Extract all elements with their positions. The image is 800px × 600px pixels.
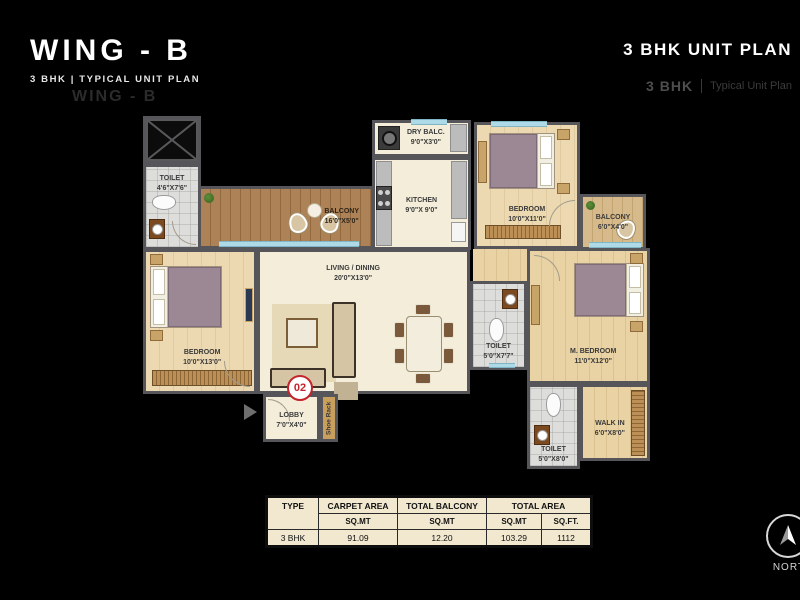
value-total-balcony: 12.20 [398, 530, 487, 547]
side-table [630, 253, 643, 264]
room-label: LIVING / DINING [326, 264, 380, 274]
sink-icon [451, 222, 466, 242]
room-label: BEDROOM [184, 348, 221, 358]
room-kitchen: KITCHEN 9'0"X 9'0" [372, 157, 471, 250]
room-dims: 6'0"X8'0" [595, 429, 625, 439]
side-table [557, 129, 570, 140]
room-toilet-middle: TOILET 5'0"X7'7" [470, 281, 527, 370]
room-dry-balcony: DRY BALC. 9'0"X3'0" [372, 120, 471, 157]
washbasin-icon [502, 289, 518, 309]
room-label: BALCONY [596, 213, 631, 223]
value-total-area-sqft: 1112 [542, 530, 592, 547]
room-lobby: LOBBY 7'0"X4'0" [263, 394, 320, 442]
shaft-duct [143, 116, 201, 164]
room-toilet-bottom: TOILET 5'0"X8'0" [527, 384, 580, 469]
utility-counter [450, 124, 467, 152]
window [489, 363, 515, 368]
ghost-type-text: Typical Unit Plan [710, 80, 792, 92]
toilet-wc-icon [152, 195, 176, 210]
window [219, 241, 359, 247]
room-dims: 16'0"X5'0" [325, 217, 359, 227]
table-header-row: TYPE CARPET AREA TOTAL BALCONY TOTAL ARE… [267, 497, 592, 514]
room-label: BEDROOM [509, 205, 546, 215]
door-arc [549, 200, 575, 226]
bed-icon [574, 263, 644, 317]
room-label: BALCONY [324, 207, 359, 217]
north-arrow-icon [775, 523, 800, 549]
col-type: TYPE [267, 497, 319, 530]
window [589, 242, 641, 248]
col-carpet-area: CARPET AREA [319, 497, 398, 514]
dining-table-icon [406, 316, 442, 372]
room-dims: 4'6"X7'6" [157, 184, 187, 194]
dining-chair-icon [443, 322, 454, 338]
stove-icon [376, 186, 392, 210]
room-dims: 5'0"X7'7" [483, 352, 513, 362]
unit-plan-title: 3 BHK UNIT PLAN [623, 40, 792, 60]
bed-icon [489, 133, 555, 189]
room-dims: 9'0"X3'0" [411, 138, 441, 148]
plant-icon [204, 193, 214, 203]
wardrobe-icon [485, 225, 561, 239]
side-table [150, 330, 163, 341]
room-dims: 9'0"X 9'0" [405, 206, 437, 216]
wing-subtitle: 3 BHK | TYPICAL UNIT PLAN [30, 74, 200, 85]
kitchen-counter [451, 161, 467, 219]
room-dims: 10'0"X13'0" [183, 358, 221, 368]
room-master-bedroom: M. BEDROOM 11'0"X12'0" [527, 248, 650, 384]
compass-circle [766, 514, 800, 558]
wardrobe-icon [631, 390, 645, 456]
room-label: WALK IN [595, 419, 625, 429]
room-label: TOILET [486, 342, 511, 352]
window [491, 121, 547, 127]
toilet-wc-icon [546, 393, 561, 417]
tv-unit [245, 288, 253, 322]
dining-chair-icon [394, 322, 405, 338]
washbasin-icon [149, 219, 165, 239]
header-right: 3 BHK UNIT PLAN 3 BHK Typical Unit Plan [623, 40, 792, 94]
unit-sqmt: SQ.MT [319, 514, 398, 530]
room-living-dining: LIVING / DINING 20'0"X13'0" [257, 249, 470, 394]
shoe-rack: Shoe Rack [320, 394, 338, 442]
floor-plan: TOILET 4'6"X7'6" BALCONY 16'0"X5'0" DRY … [140, 88, 672, 488]
wing-title: WING - B [30, 34, 200, 68]
shoe-rack-label: Shoe Rack [323, 397, 335, 439]
dresser [531, 285, 540, 325]
room-dims: 10'0"X11'0" [508, 215, 546, 225]
north-compass: NORTH [766, 514, 800, 573]
room-walk-in: WALK IN 6'0"X8'0" [580, 384, 650, 461]
value-total-area-sqmt: 103.29 [487, 530, 542, 547]
room-dims: 20'0"X13'0" [334, 274, 372, 284]
window [411, 119, 447, 125]
north-label: NORTH [760, 562, 800, 573]
room-label: KITCHEN [406, 196, 437, 206]
door-arc [534, 255, 560, 281]
balcony-table-icon [307, 203, 322, 218]
entry-arrow-icon [244, 404, 257, 420]
toilet-wc-icon [489, 318, 504, 342]
room-toilet-top-left: TOILET 4'6"X7'6" [143, 164, 201, 250]
col-total-balcony: TOTAL BALCONY [398, 497, 487, 514]
unit-sqmt: SQ.MT [398, 514, 487, 530]
dining-chair-icon [415, 304, 431, 315]
shaft-cross-icon [146, 119, 198, 161]
dining-chair-icon [443, 348, 454, 364]
room-bedroom-left: BEDROOM 10'0"X13'0" [143, 249, 257, 394]
side-table [150, 254, 163, 265]
dining-chair-icon [394, 348, 405, 364]
side-table [557, 183, 570, 194]
unit-number-badge: 02 [287, 375, 313, 401]
room-label: M. BEDROOM [570, 347, 616, 357]
value-type: 3 BHK [267, 530, 319, 547]
room-dims: 11'0"X12'0" [574, 357, 612, 367]
door-arc [172, 221, 196, 245]
table-data-row: 3 BHK 91.09 12.20 103.29 1112 [267, 530, 592, 547]
col-total-area: TOTAL AREA [487, 497, 592, 514]
desk [478, 141, 487, 183]
washbasin-icon [534, 425, 550, 445]
room-label: LOBBY [279, 411, 304, 421]
value-carpet-area: 91.09 [319, 530, 398, 547]
ghost-divider [701, 79, 702, 93]
room-dims: 5'0"X8'0" [538, 455, 568, 465]
balcony-chair-icon [286, 211, 310, 236]
unit-number: 02 [294, 382, 306, 394]
side-table [630, 321, 643, 332]
dining-chair-icon [415, 373, 431, 384]
sofa-icon [332, 302, 356, 378]
room-bedroom-top: BEDROOM 10'0"X11'0" [474, 122, 580, 249]
washing-machine-icon [378, 126, 400, 150]
room-balcony-right: BALCONY 6'0"X4'0" [580, 194, 646, 250]
plant-icon [586, 201, 595, 210]
room-balcony-main: BALCONY 16'0"X5'0" [198, 186, 374, 249]
room-dims: 7'0"X4'0" [276, 421, 306, 431]
room-dims: 6'0"X4'0" [598, 223, 628, 233]
coffee-table-icon [286, 318, 318, 348]
unit-sqft: SQ.FT. [542, 514, 592, 530]
area-statement-table: TYPE CARPET AREA TOTAL BALCONY TOTAL ARE… [265, 495, 593, 548]
bed-icon [150, 266, 222, 328]
room-label: DRY BALC. [407, 128, 445, 138]
room-label: TOILET [541, 445, 566, 455]
unit-sqmt: SQ.MT [487, 514, 542, 530]
room-label: TOILET [160, 174, 185, 184]
passage [473, 249, 527, 283]
